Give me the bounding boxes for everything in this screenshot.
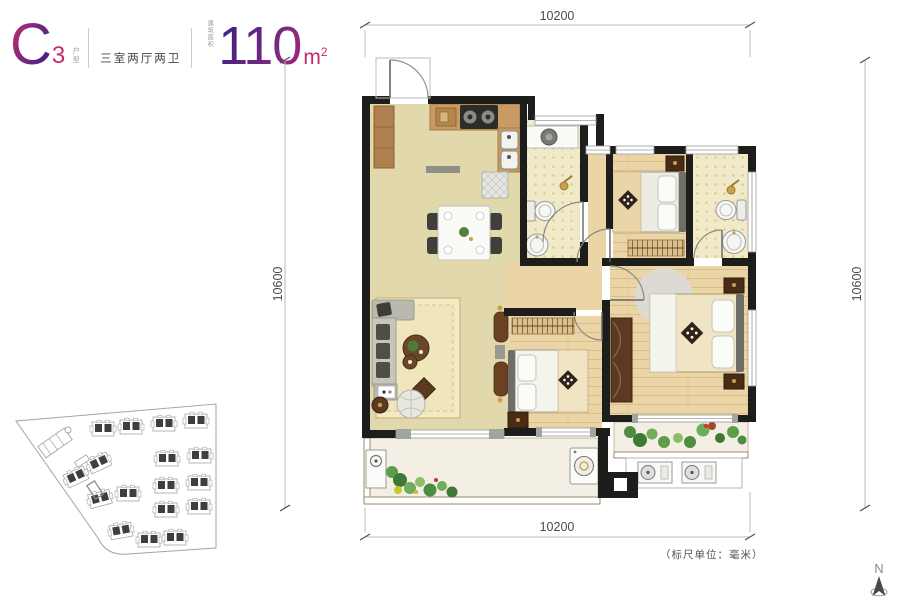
window: [632, 414, 738, 423]
window: [535, 116, 596, 125]
floor-pouf: [397, 390, 425, 418]
floorplan-page: C 3 户型 三室两厅两卫 建筑面积 110 m2: [0, 0, 900, 600]
dimension-bottom: 10200: [540, 520, 575, 534]
window: [686, 146, 738, 154]
toilet-icon: [716, 200, 746, 220]
window: [748, 172, 756, 252]
entry-tile-mat: [482, 172, 508, 198]
window: [586, 146, 610, 154]
dimension-top: 10200: [540, 9, 575, 23]
basin-icon: [723, 231, 746, 254]
window: [536, 427, 596, 437]
master-balcony-railing: [614, 452, 748, 458]
wardrobe: [611, 318, 632, 402]
entry-door: [376, 58, 430, 98]
north-label: N: [874, 561, 883, 576]
bed: [613, 172, 686, 232]
kitchen-low-cabinet: [426, 166, 460, 173]
side-table: [372, 397, 388, 413]
dimension-left: 10600: [271, 267, 285, 302]
closet: [628, 240, 684, 256]
bed: [508, 350, 588, 412]
basin-icon: [526, 234, 548, 256]
compass-needle-icon: [873, 576, 886, 596]
floorplan-graphic: 10200 10200 10600 10600: [0, 0, 900, 600]
main-balcony-floor: [370, 438, 598, 500]
ac-unit: [682, 462, 716, 483]
scale-note: （标尺单位：毫米）: [660, 548, 764, 561]
washing-machine: [570, 448, 598, 484]
dimension-right: 10600: [850, 267, 864, 302]
bed: [650, 294, 744, 372]
dining-chair: [489, 213, 502, 230]
sliding-door: [396, 429, 504, 439]
window: [748, 310, 756, 386]
stove: [460, 105, 498, 129]
window: [616, 146, 654, 154]
closet: [512, 318, 574, 334]
corridor-floor: [588, 154, 606, 264]
hallway-floor: [505, 262, 602, 310]
ac-platform: [626, 458, 742, 488]
ac-unit: [638, 462, 672, 483]
site-plan: [16, 404, 216, 554]
dining-chair: [489, 237, 502, 254]
north-arrow: N: [871, 561, 887, 596]
entry-cabinet: [374, 106, 394, 168]
balcony-railing-bottom: [364, 497, 600, 504]
